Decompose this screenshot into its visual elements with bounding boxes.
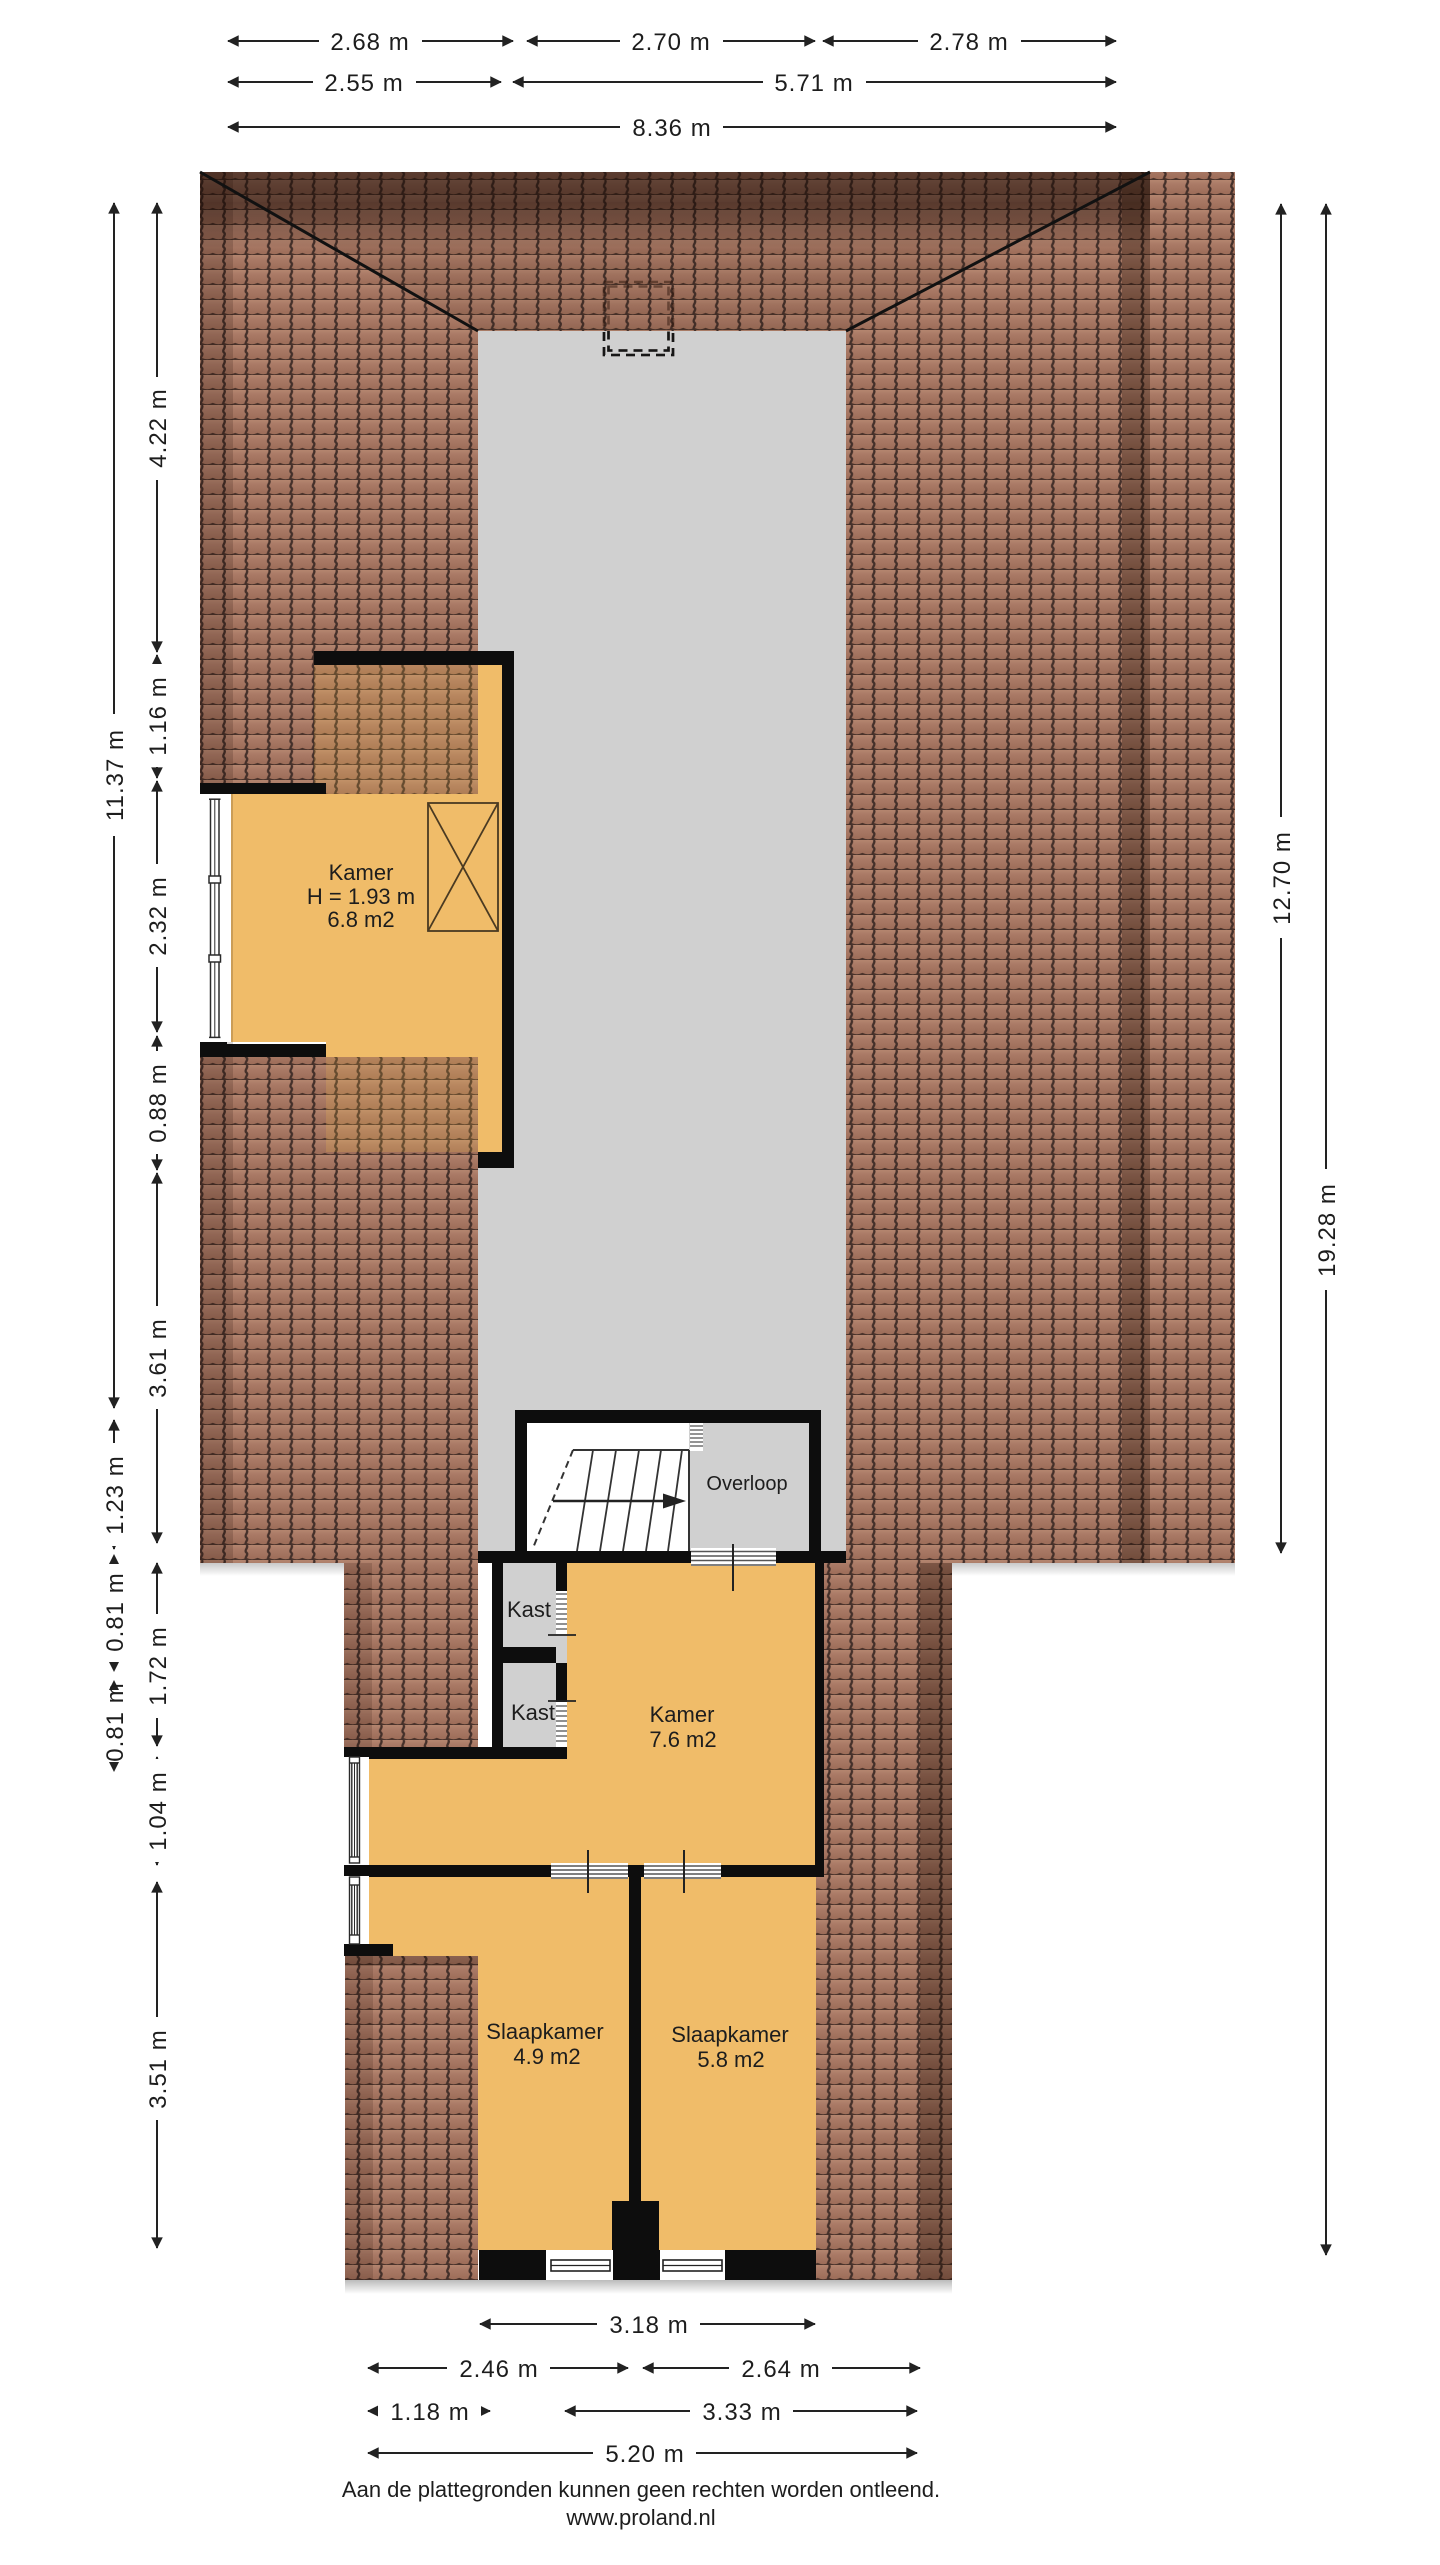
svg-text:H = 1.93 m: H = 1.93 m	[307, 884, 415, 909]
svg-text:6.8 m2: 6.8 m2	[327, 907, 394, 932]
svg-text:3.51 m: 3.51 m	[145, 2029, 172, 2108]
svg-text:2.68 m: 2.68 m	[330, 29, 409, 56]
svg-text:3.33 m: 3.33 m	[702, 2399, 781, 2426]
svg-text:2.70 m: 2.70 m	[631, 29, 710, 56]
svg-text:2.64 m: 2.64 m	[741, 2356, 820, 2383]
svg-text:11.37 m: 11.37 m	[102, 729, 129, 821]
svg-text:Overloop: Overloop	[706, 1473, 787, 1495]
svg-text:2.78 m: 2.78 m	[929, 29, 1008, 56]
svg-text:19.28 m: 19.28 m	[1314, 1183, 1341, 1277]
svg-text:Kast: Kast	[511, 1700, 555, 1725]
svg-text:Kast: Kast	[507, 1597, 551, 1622]
svg-text:Kamer: Kamer	[329, 860, 394, 885]
svg-text:3.61 m: 3.61 m	[145, 1318, 172, 1397]
svg-text:4.22 m: 4.22 m	[145, 388, 172, 467]
svg-text:0.81 m: 0.81 m	[102, 1572, 129, 1651]
svg-text:1.16 m: 1.16 m	[145, 676, 172, 755]
svg-text:2.55 m: 2.55 m	[324, 70, 403, 97]
svg-text:1.72 m: 1.72 m	[145, 1626, 172, 1705]
svg-text:Kamer: Kamer	[650, 1702, 715, 1727]
svg-text:5.8 m2: 5.8 m2	[697, 2047, 764, 2072]
svg-text:1.04 m: 1.04 m	[145, 1771, 172, 1850]
svg-text:8.36 m: 8.36 m	[632, 115, 711, 142]
svg-text:2.32 m: 2.32 m	[145, 876, 172, 955]
svg-text:4.9 m2: 4.9 m2	[513, 2044, 580, 2069]
svg-text:5.20 m: 5.20 m	[605, 2441, 684, 2468]
svg-text:1.18 m: 1.18 m	[390, 2399, 469, 2426]
svg-text:12.70 m: 12.70 m	[1269, 831, 1296, 925]
svg-text:Slaapkamer: Slaapkamer	[671, 2022, 788, 2047]
svg-text:Slaapkamer: Slaapkamer	[486, 2019, 603, 2044]
svg-text:www.proland.nl: www.proland.nl	[565, 2505, 715, 2530]
svg-text:7.6 m2: 7.6 m2	[649, 1727, 716, 1752]
svg-text:3.18 m: 3.18 m	[609, 2312, 688, 2339]
svg-text:5.71 m: 5.71 m	[774, 70, 853, 97]
svg-text:0.81 m: 0.81 m	[102, 1682, 129, 1761]
svg-text:2.46 m: 2.46 m	[459, 2356, 538, 2383]
svg-text:1.23 m: 1.23 m	[102, 1455, 129, 1534]
svg-text:Aan de plattegronden kunnen ge: Aan de plattegronden kunnen geen rechten…	[342, 2477, 940, 2502]
svg-text:0.88 m: 0.88 m	[145, 1063, 172, 1142]
